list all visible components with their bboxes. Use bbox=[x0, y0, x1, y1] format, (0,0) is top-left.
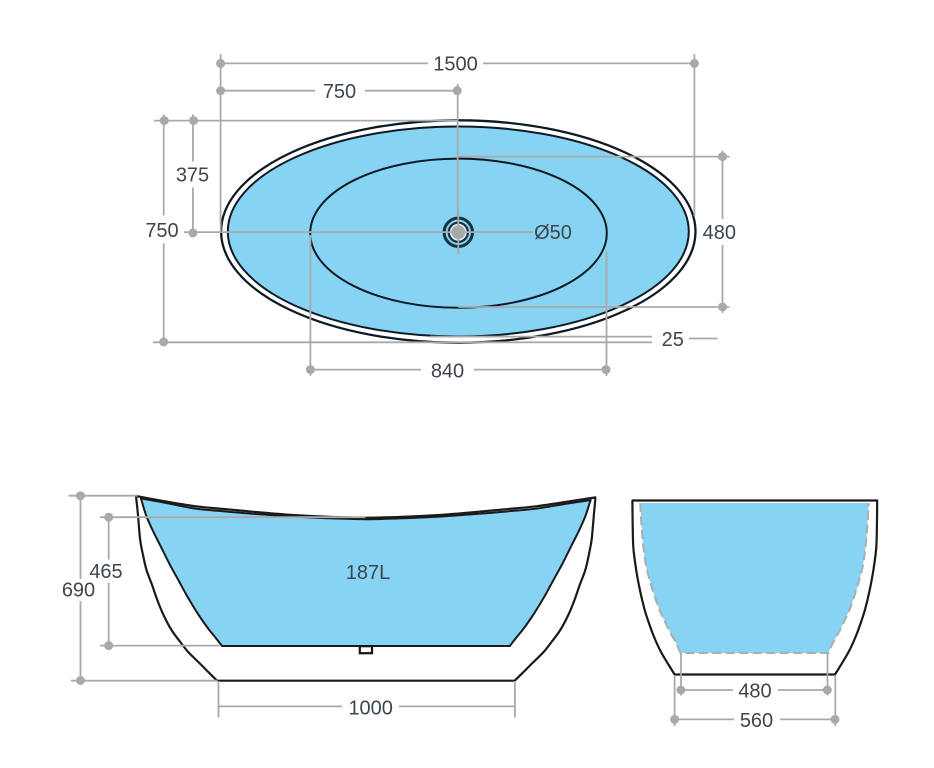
svg-text:187L: 187L bbox=[346, 562, 391, 584]
svg-text:1000: 1000 bbox=[348, 697, 393, 719]
svg-text:375: 375 bbox=[176, 165, 209, 187]
svg-text:25: 25 bbox=[662, 329, 684, 351]
svg-text:480: 480 bbox=[703, 222, 736, 244]
svg-text:750: 750 bbox=[323, 81, 356, 103]
svg-text:840: 840 bbox=[431, 361, 464, 383]
svg-text:480: 480 bbox=[738, 681, 771, 703]
svg-text:Ø50: Ø50 bbox=[534, 222, 572, 244]
svg-text:560: 560 bbox=[740, 710, 773, 732]
svg-text:750: 750 bbox=[145, 220, 178, 242]
svg-text:1500: 1500 bbox=[433, 54, 478, 76]
svg-text:465: 465 bbox=[89, 561, 122, 583]
